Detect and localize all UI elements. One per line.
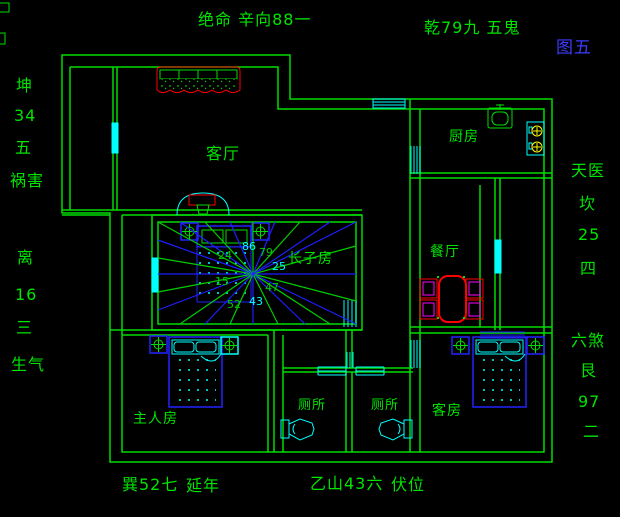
annotation-right-gen: 艮 [580,363,597,379]
annotation-right-liusha: 六煞 [571,333,605,349]
dining-chairs [420,279,483,319]
annotation-left-li: 离 [17,250,34,266]
compass-number-43: 43 [249,296,263,307]
annotation-bottom-xun: 巽52七 [122,477,178,493]
annotation-left-kun: 坤 [16,78,33,94]
room-label-dining: 餐厅 [430,245,460,259]
annotation-left-34: 34 [14,108,36,124]
fan-icon [221,337,238,354]
door-kitchen-hatch [411,146,420,174]
annotation-right-25: 25 [578,227,600,243]
door-corridor-hatch [411,340,420,368]
annotation-top-right: 乾79九 五鬼 [424,20,520,36]
room-label-kitchen: 厨房 [449,130,479,144]
annotation-right-97: 97 [578,394,600,410]
annotation-bottom-yannian: 延年 [186,478,220,494]
annotation-left-huohai: 祸害 [10,173,44,189]
compass-number-24: 24 [218,250,232,261]
window-dining-wall [495,240,501,273]
guest-bed [473,337,526,407]
compass-number-25: 25 [272,261,286,272]
corner-marks [0,3,9,44]
room-label-living: 客厅 [206,146,240,162]
fan-icon [452,337,469,354]
window-balcony-wall [112,123,118,153]
annotation-right-kan: 坎 [579,196,596,212]
compass-number-79: 79 [259,247,273,258]
compass-star [158,222,356,324]
figure-label: 图五 [556,40,592,57]
cad-floor-plan-screen: 绝命 辛向88一 乾79九 五鬼 图五 坤 34 五 祸害 离 16 三 生气 … [0,0,620,517]
annotation-bottom-yishan: 乙山43六 [310,476,383,492]
window-top-hall [373,99,405,108]
annotation-left-wu: 五 [15,140,32,156]
compass-number-86: 86 [242,241,256,252]
annotation-left-san: 三 [16,320,33,336]
toilet-right-icon [379,419,412,440]
annotation-left-shengqi: 生气 [11,357,45,373]
room-label-master: 主人房 [133,412,178,426]
fan-icon [527,337,544,354]
dining-table-set [420,276,483,322]
toilet-left-icon [281,419,314,440]
compass-number-52: 52 [227,299,241,310]
annotation-right-si: 四 [580,261,597,277]
fan-icon [150,336,167,353]
room-label-guest: 客房 [432,404,462,418]
sofa [157,67,240,93]
annotation-top-left: 绝命 辛向88一 [198,12,311,28]
fan-icon [252,223,269,240]
annotation-right-er: 二 [583,424,600,440]
annotation-right-tianyi: 天医 [571,163,605,179]
annotation-bottom-fuwei: 伏位 [391,477,425,493]
tv-cabinet [177,193,229,215]
room-label-eldest-son: 长子房 [288,252,333,266]
stove-icon [527,122,544,155]
annotation-left-16: 16 [15,287,37,303]
kitchen-sink-icon [488,104,512,128]
compass-number-15: 15 [215,276,229,287]
master-bed [169,337,222,407]
room-label-toilet-left: 厕所 [298,399,326,412]
fan-icon [181,223,198,240]
compass-number-47: 47 [265,282,279,293]
room-label-toilet-right: 厕所 [371,399,399,412]
window-eldest-room [152,258,158,292]
